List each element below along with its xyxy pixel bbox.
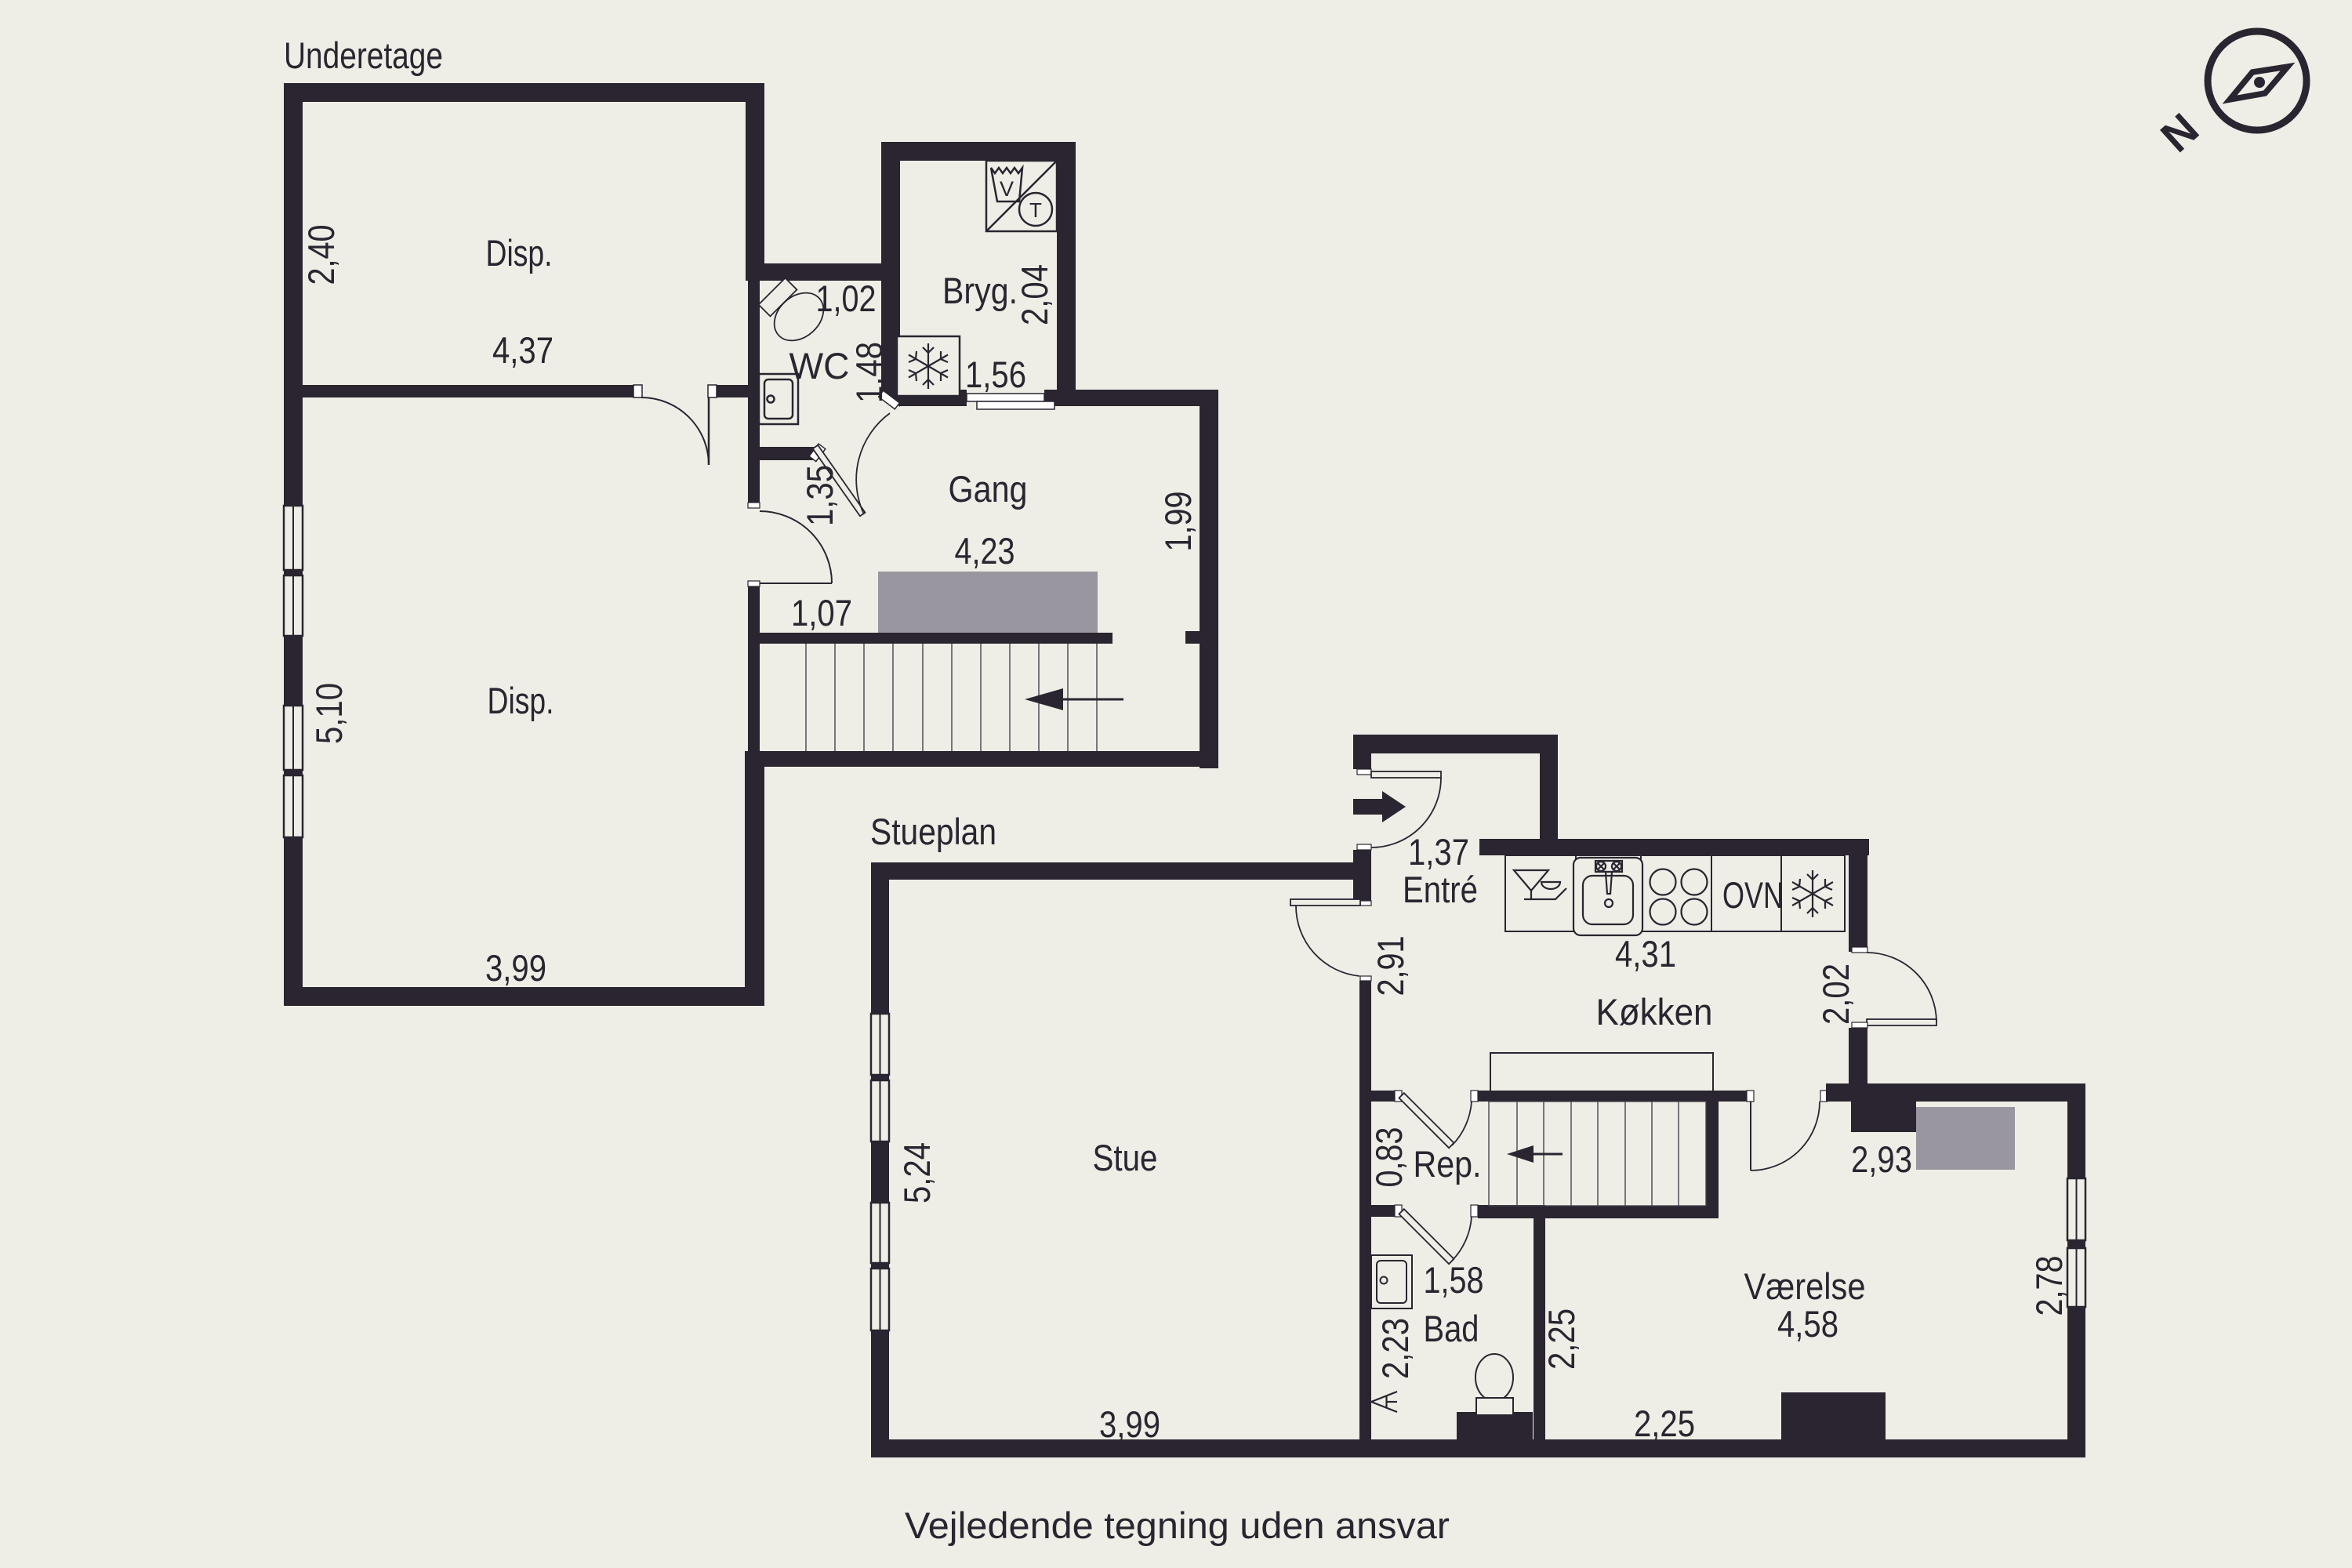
svg-text:Underetage: Underetage [284,34,443,76]
svg-text:Stueplan: Stueplan [870,811,996,852]
svg-text:2,40: 2,40 [300,225,342,285]
svg-text:2,02: 2,02 [1815,964,1857,1025]
svg-text:5,10: 5,10 [308,683,350,744]
svg-text:Stue: Stue [1093,1137,1158,1178]
svg-text:1,35: 1,35 [799,465,840,526]
svg-text:2,23: 2,23 [1374,1318,1416,1379]
svg-text:Vejledende tegning uden ansvar: Vejledende tegning uden ansvar [905,1504,1450,1546]
svg-text:2,91: 2,91 [1370,936,1411,996]
svg-text:Entré: Entré [1403,869,1478,910]
svg-text:4,37: 4,37 [492,329,554,371]
svg-text:1,02: 1,02 [816,278,877,319]
svg-text:4,58: 4,58 [1777,1303,1838,1345]
svg-text:2,78: 2,78 [2028,1256,2070,1316]
svg-text:Bryg.: Bryg. [942,270,1018,311]
svg-text:4,31: 4,31 [1615,933,1676,975]
svg-text:V: V [1000,177,1014,201]
svg-text:1,58: 1,58 [1424,1259,1484,1301]
svg-text:0,83: 0,83 [1368,1127,1410,1188]
svg-text:4,23: 4,23 [955,530,1015,572]
svg-text:Rep.: Rep. [1414,1143,1482,1185]
svg-text:1,07: 1,07 [791,592,852,633]
svg-text:2,25: 2,25 [1541,1308,1582,1370]
svg-text:WC: WC [789,345,850,387]
svg-text:Køkken: Køkken [1596,991,1713,1033]
svg-text:1,48: 1,48 [848,342,890,403]
svg-text:2,04: 2,04 [1014,264,1055,325]
svg-text:Gang: Gang [949,468,1028,510]
svg-text:Værelse: Værelse [1744,1265,1866,1307]
svg-text:Disp.: Disp. [488,680,554,721]
svg-text:T: T [1029,198,1042,222]
svg-text:OVN: OVN [1722,874,1784,916]
svg-text:3,99: 3,99 [485,947,546,989]
svg-text:1,37: 1,37 [1408,831,1469,873]
svg-text:Bad: Bad [1424,1308,1479,1349]
svg-text:1,99: 1,99 [1157,492,1199,552]
svg-text:Disp.: Disp. [486,232,553,274]
svg-text:2,93: 2,93 [1851,1138,1912,1180]
svg-text:3,99: 3,99 [1099,1403,1160,1445]
svg-text:1,56: 1,56 [965,354,1026,395]
svg-text:5,24: 5,24 [896,1142,938,1203]
svg-text:2,25: 2,25 [1634,1403,1695,1444]
